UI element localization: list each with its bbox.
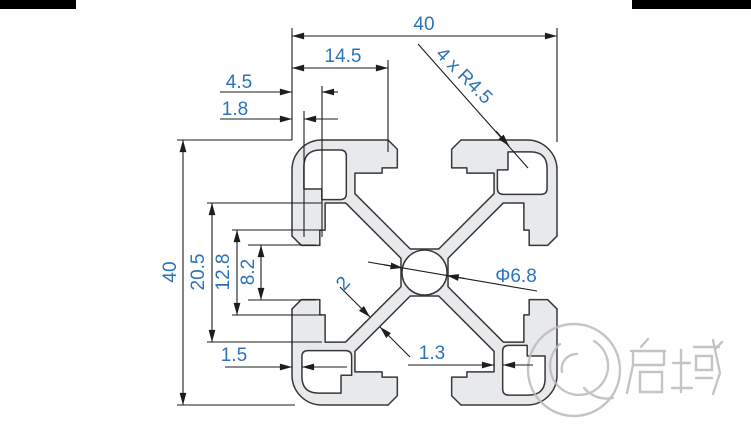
dim-height-left: 40 xyxy=(160,261,181,282)
dim-wall-15: 1.5 xyxy=(221,345,247,366)
watermark-q-inner xyxy=(562,354,577,372)
table-border-right-bar xyxy=(632,0,751,9)
watermark-char-qi xyxy=(627,339,665,393)
dim-center-hole: Φ6.8 xyxy=(495,266,537,287)
dim-slot-mouth: 14.5 xyxy=(325,46,362,67)
dim-slot-opening: 8.2 xyxy=(238,259,259,285)
table-border-left-bar xyxy=(0,0,76,9)
dim-width-top: 40 xyxy=(413,14,434,35)
dim-wall-18: 1.8 xyxy=(222,99,248,120)
dim-corner-notch: 4.5 xyxy=(226,72,252,93)
center-hole xyxy=(402,250,447,295)
watermark-char-yu xyxy=(672,340,722,394)
watermark-q-tail xyxy=(584,388,613,399)
watermark-q-swirl xyxy=(550,341,608,395)
dim-wall-13: 1.3 xyxy=(419,343,445,364)
dim-corner-radius: 4 x R4.5 xyxy=(431,44,496,109)
dim-slot-cavity: 12.8 xyxy=(213,254,234,291)
dim-channel-span: 20.5 xyxy=(188,254,209,291)
drawing-canvas: 40 14.5 4.5 1.8 40 20.5 12.8 8.2 1.5 1.3… xyxy=(0,0,751,428)
profile-drawing-svg: 40 14.5 4.5 1.8 40 20.5 12.8 8.2 1.5 1.3… xyxy=(0,0,751,428)
